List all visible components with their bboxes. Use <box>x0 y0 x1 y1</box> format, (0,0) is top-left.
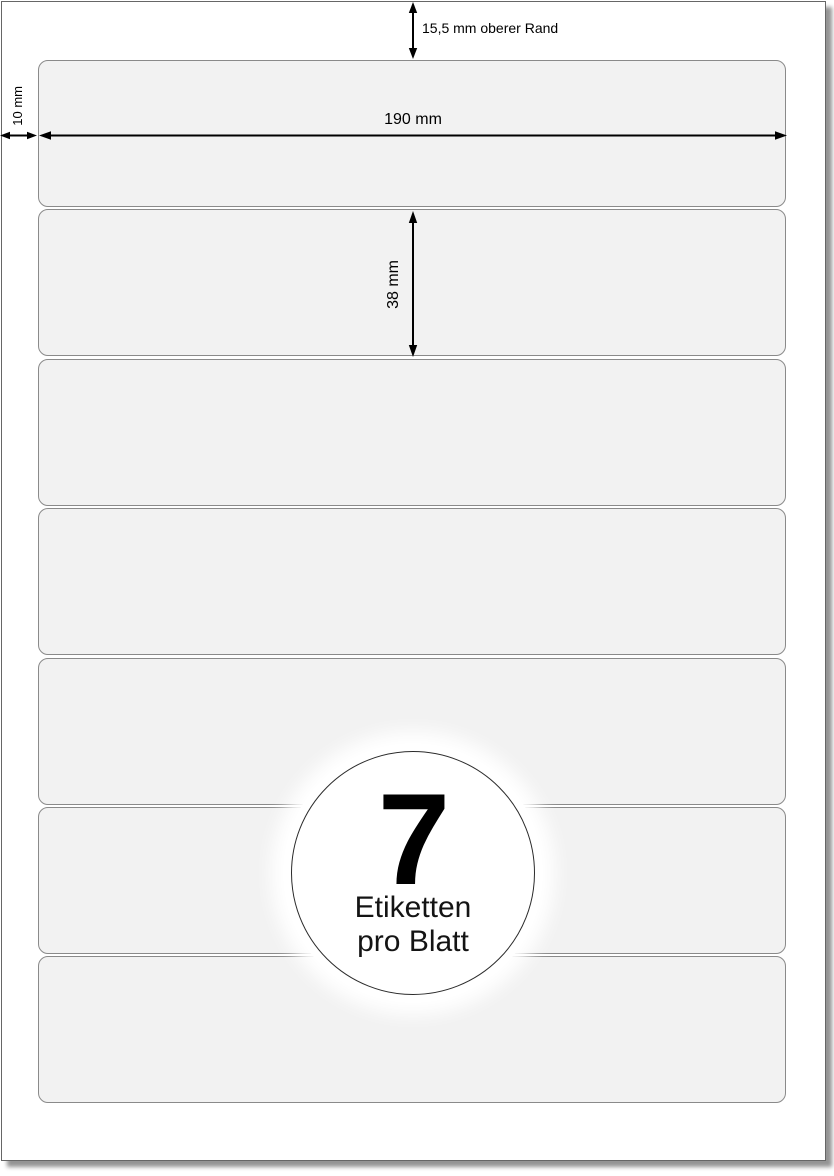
label-sheet-diagram: 15,5 mm oberer Rand 190 mm 10 mm 38 mm 7 <box>0 0 834 1176</box>
label-row-4 <box>38 508 786 655</box>
badge-text-line1: Etiketten <box>355 891 472 926</box>
labels-per-sheet-badge: 7 Etiketten pro Blatt <box>291 751 535 995</box>
label-width-dimension-label: 190 mm <box>333 111 493 129</box>
top-margin-dimension <box>407 2 419 59</box>
double-arrow-vertical-icon <box>407 211 419 357</box>
left-margin-dimension-label-box: 10 mm <box>4 80 30 132</box>
label-row-3 <box>38 359 786 506</box>
label-height-dimension-label: 38 mm <box>385 260 403 309</box>
label-width-dimension <box>39 129 787 142</box>
label-height-dimension <box>407 211 419 357</box>
badge-text-line2: pro Blatt <box>357 925 469 960</box>
double-arrow-vertical-icon <box>407 2 419 59</box>
labels-per-sheet-count: 7 <box>378 787 448 891</box>
double-arrow-horizontal-icon <box>39 129 787 142</box>
top-margin-dimension-label: 15,5 mm oberer Rand <box>422 21 558 36</box>
label-height-dimension-label-box: 38 mm <box>381 242 407 326</box>
left-margin-dimension-label: 10 mm <box>10 86 25 126</box>
